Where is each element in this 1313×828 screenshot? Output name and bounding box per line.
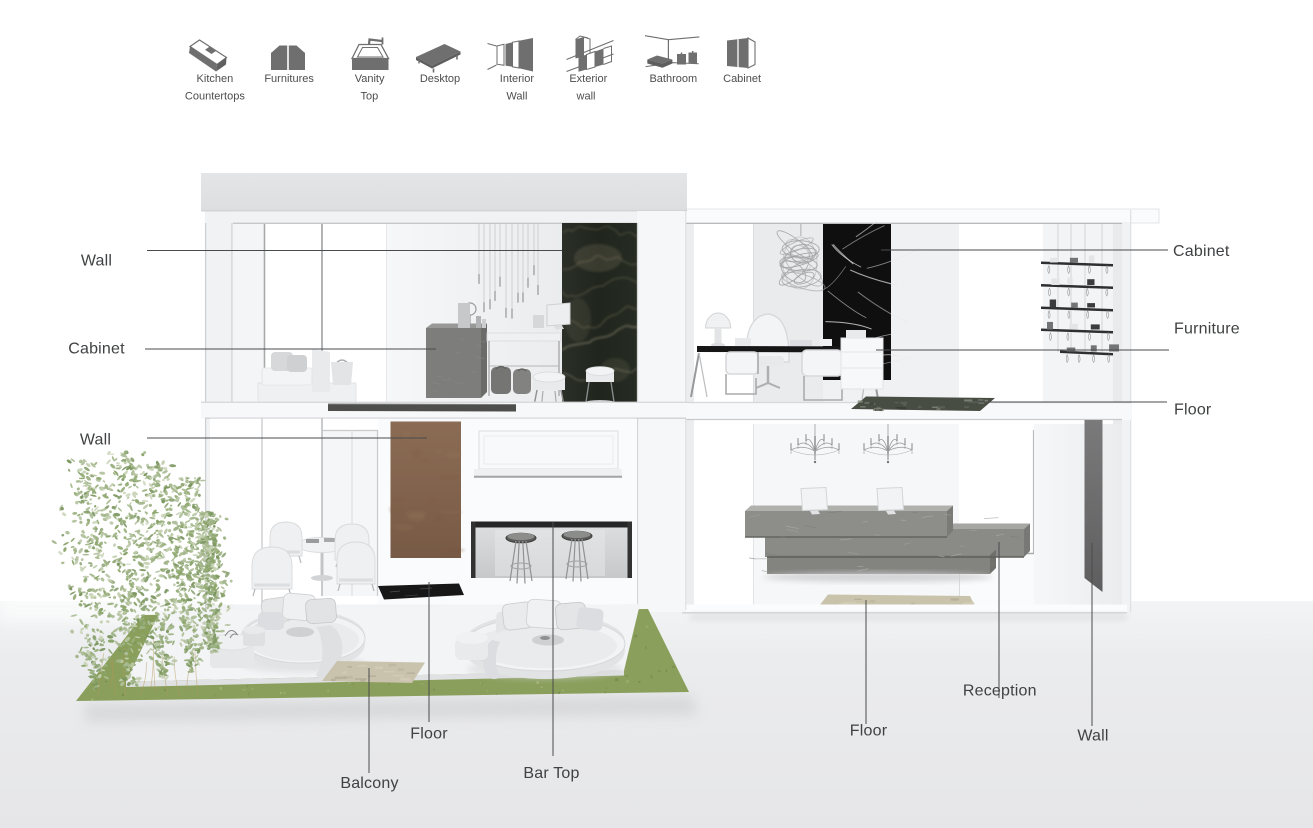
svg-text:Wall: Wall: [1077, 728, 1108, 745]
svg-text:Wall: Wall: [81, 253, 112, 270]
svg-text:Wall: Wall: [80, 432, 111, 449]
svg-text:Cabinet: Cabinet: [1173, 243, 1230, 260]
svg-text:Top: Top: [361, 91, 379, 103]
svg-text:Vanity: Vanity: [355, 73, 385, 85]
svg-text:Bar Top: Bar Top: [523, 765, 579, 782]
svg-text:Countertops: Countertops: [185, 91, 245, 103]
svg-text:Desktop: Desktop: [420, 73, 460, 85]
svg-text:wall: wall: [576, 91, 596, 103]
svg-text:Exterior: Exterior: [569, 73, 607, 85]
svg-text:Reception: Reception: [963, 683, 1037, 700]
svg-text:Wall: Wall: [506, 91, 527, 103]
svg-text:Floor: Floor: [410, 726, 448, 743]
svg-text:Kitchen: Kitchen: [197, 73, 234, 85]
svg-text:Bathroom: Bathroom: [649, 73, 697, 85]
svg-text:Furnitures: Furnitures: [264, 73, 314, 85]
svg-text:Balcony: Balcony: [340, 775, 398, 792]
svg-text:Floor: Floor: [850, 723, 888, 740]
svg-text:Floor: Floor: [1174, 402, 1212, 419]
svg-text:Cabinet: Cabinet: [723, 73, 761, 85]
svg-text:Interior: Interior: [500, 73, 535, 85]
svg-text:Furniture: Furniture: [1174, 321, 1240, 338]
svg-text:Cabinet: Cabinet: [68, 341, 125, 358]
